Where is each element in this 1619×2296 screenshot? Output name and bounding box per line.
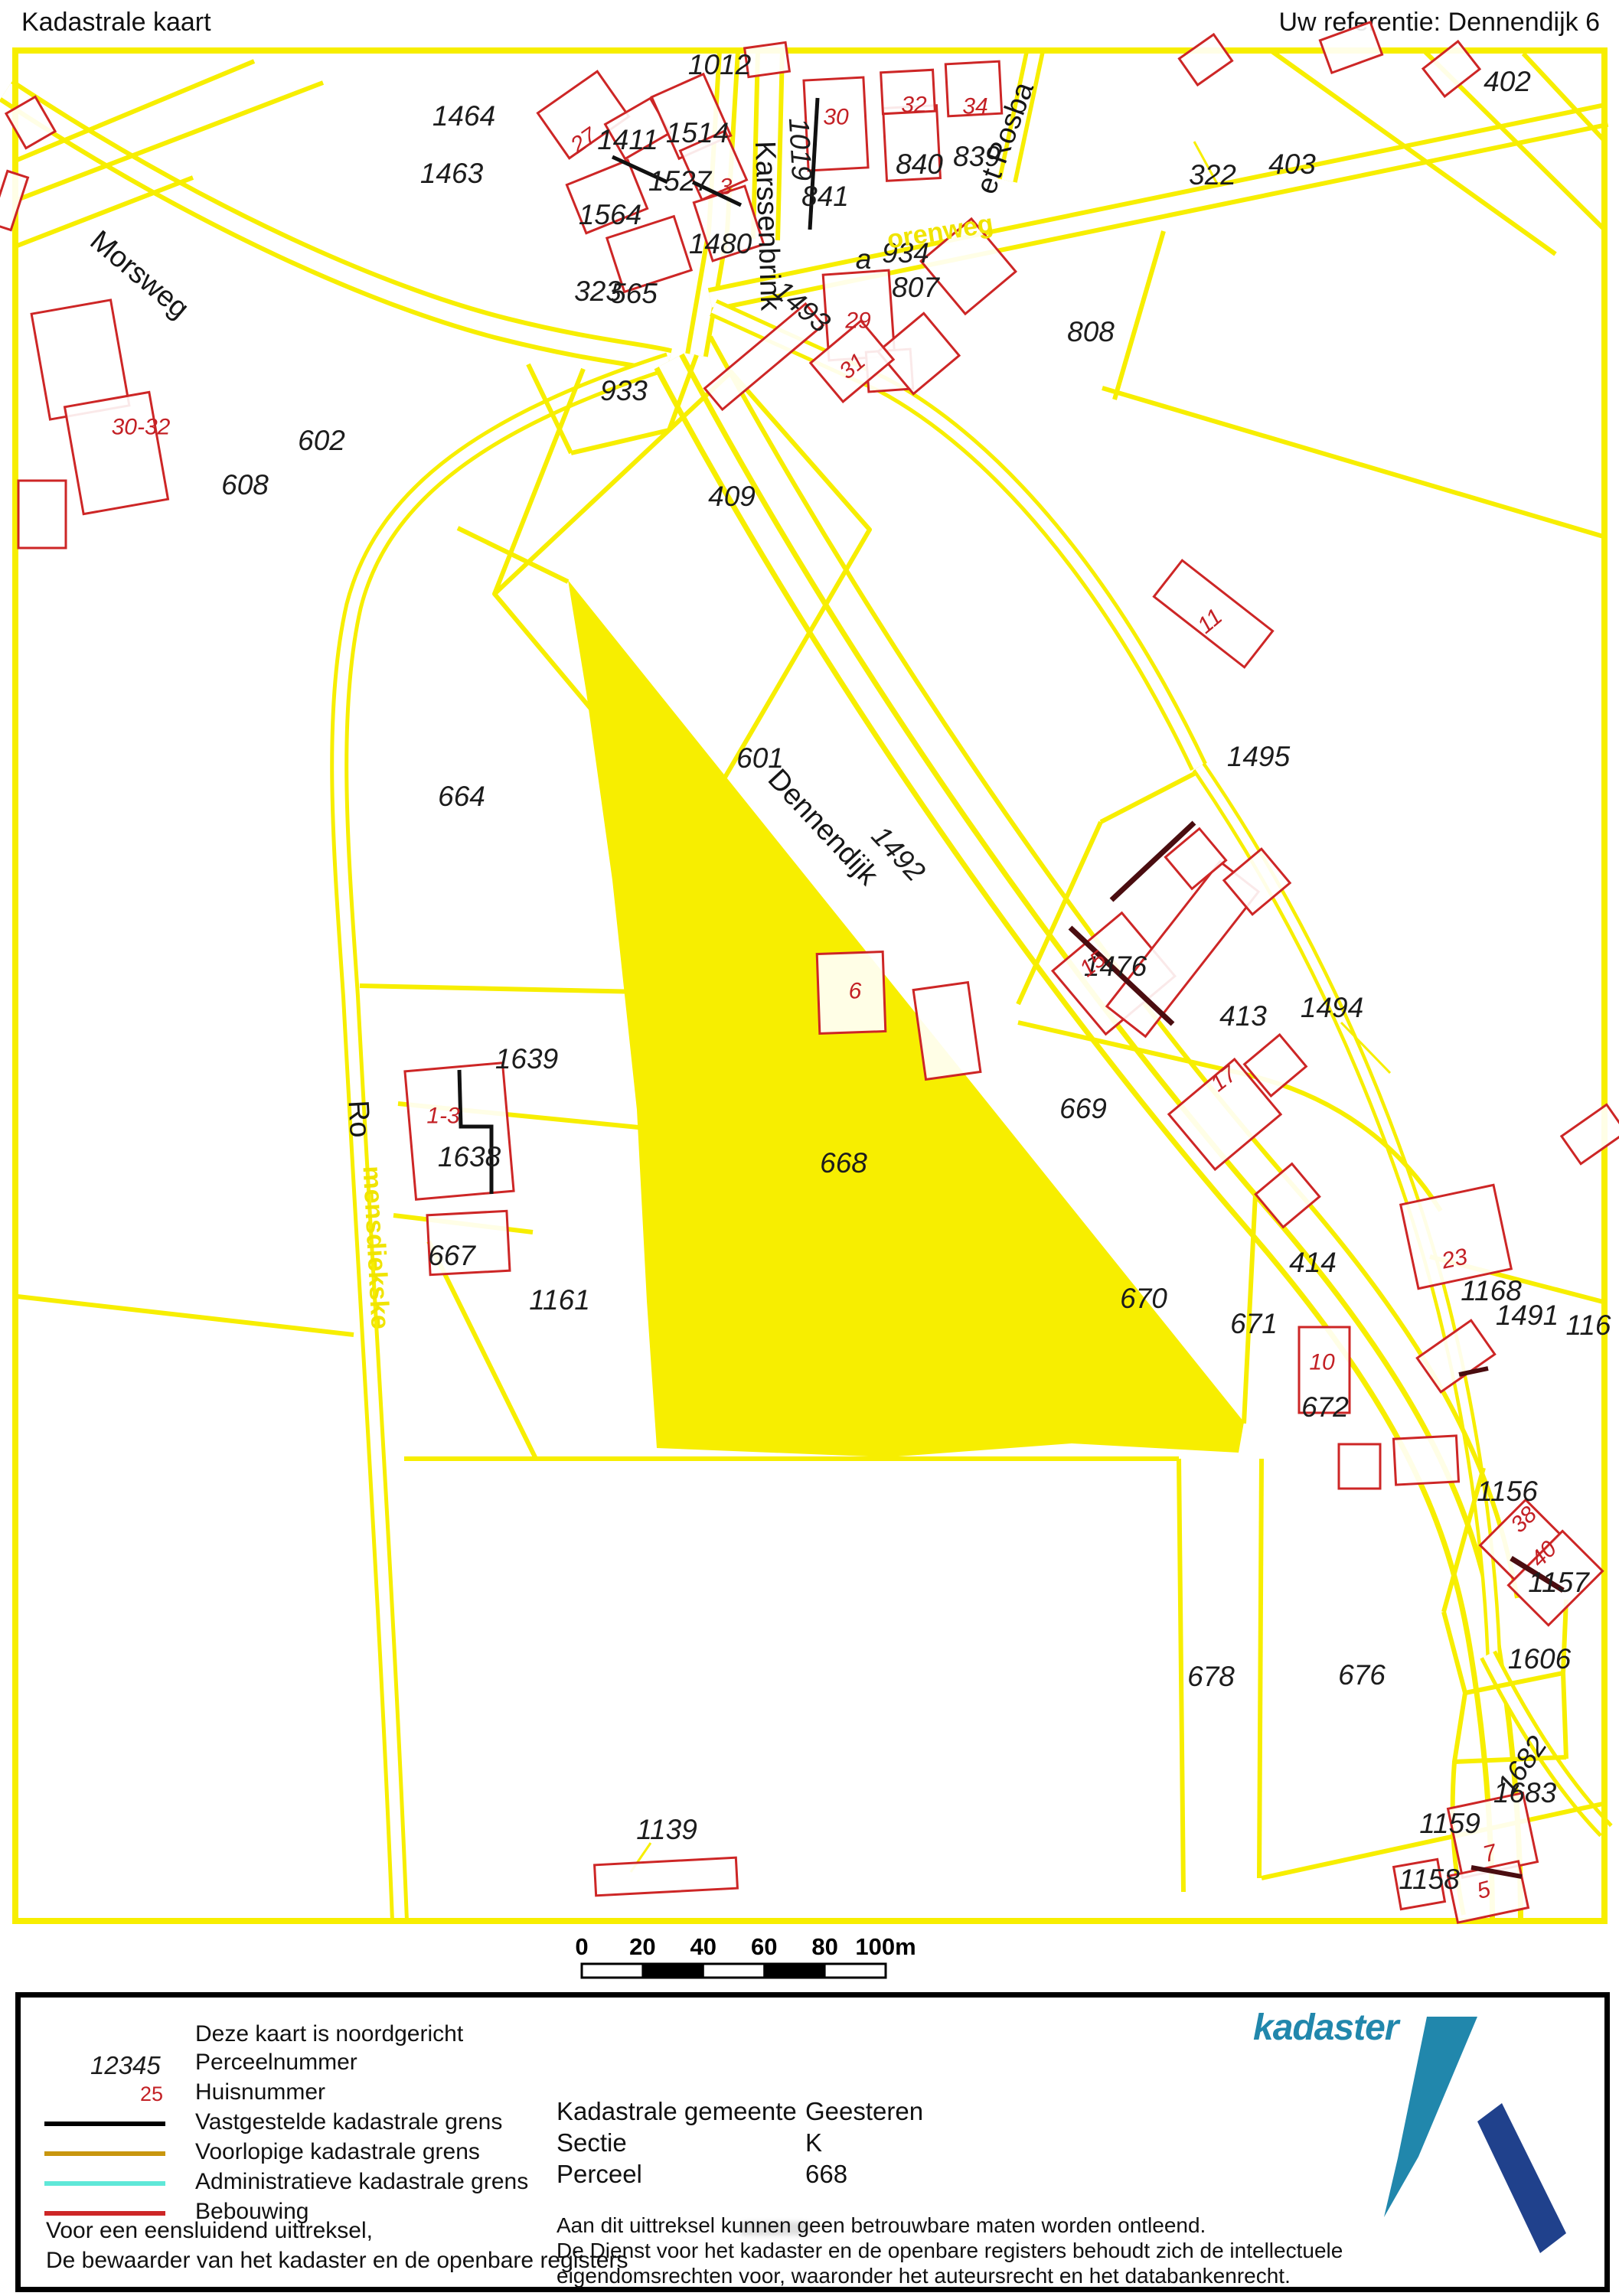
kadaster-logo-mark (0, 0, 1619, 2296)
kadastrale-kaart-page: Kadastrale kaart Uw referentie: Dennendi… (0, 0, 1619, 2296)
logo-stroke-navy (1477, 2103, 1566, 2253)
logo-pen-teal (1384, 2017, 1477, 2217)
